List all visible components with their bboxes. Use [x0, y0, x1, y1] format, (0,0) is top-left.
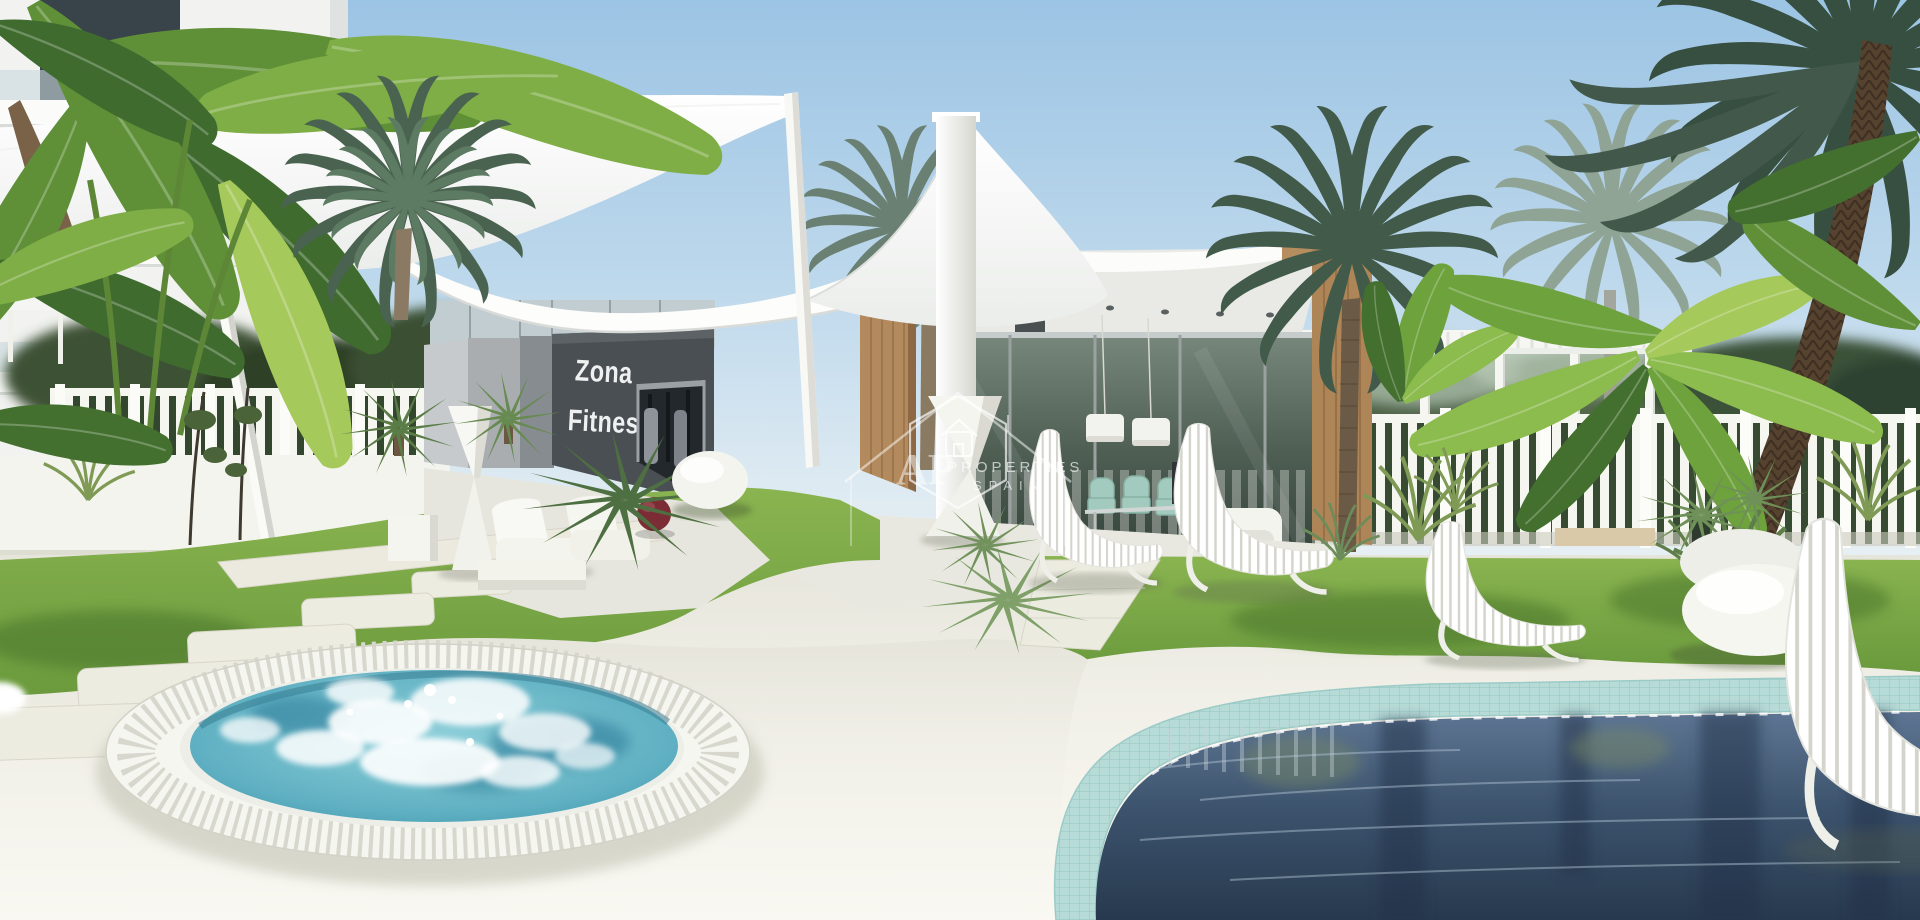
scene-canvas: Zona Fitness — [0, 0, 1920, 920]
sand-strip — [1555, 528, 1655, 546]
gym-equipment-pad — [644, 408, 658, 464]
resort-render-photo: Zona Fitness — [0, 0, 1920, 920]
watermark-initials: AP — [896, 445, 955, 494]
planter-box — [388, 515, 438, 561]
watermark-region: SPAIN — [973, 478, 1046, 493]
sign-line-1: Zona — [574, 354, 634, 390]
watermark-name: PROPERTIES — [947, 459, 1083, 476]
